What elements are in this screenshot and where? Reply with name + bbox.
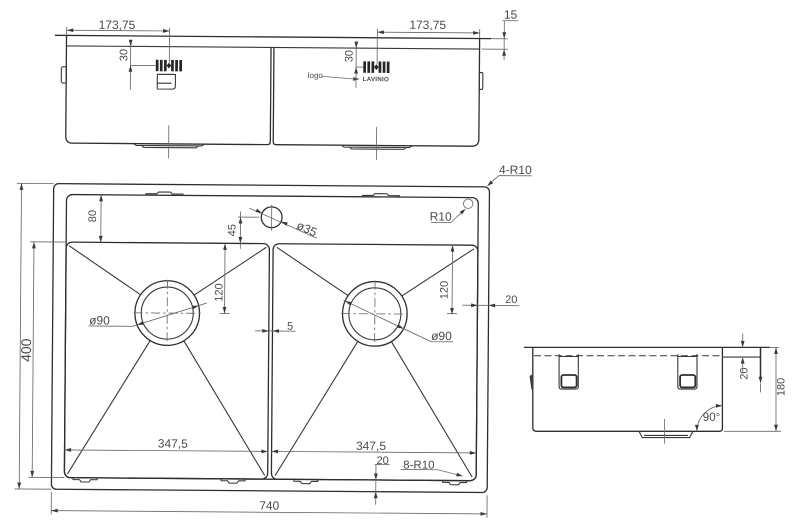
svg-text:4-R10: 4-R10 — [499, 163, 532, 177]
svg-text:ø35: ø35 — [294, 218, 319, 239]
svg-text:347,5: 347,5 — [356, 439, 386, 453]
svg-text:90°: 90° — [703, 412, 720, 424]
svg-text:30: 30 — [344, 50, 356, 62]
svg-text:173,75: 173,75 — [99, 18, 136, 32]
svg-text:ø90: ø90 — [89, 313, 110, 327]
svg-text:347,5: 347,5 — [158, 437, 188, 451]
svg-text:173,75: 173,75 — [409, 18, 446, 32]
svg-text:20: 20 — [376, 455, 388, 467]
svg-text:740: 740 — [259, 499, 279, 513]
svg-text:180: 180 — [776, 378, 788, 396]
svg-text:logo: logo — [308, 71, 324, 80]
svg-text:120: 120 — [213, 283, 225, 301]
svg-text:15: 15 — [504, 8, 518, 22]
svg-text:30: 30 — [118, 49, 130, 61]
svg-text:R10: R10 — [430, 209, 452, 223]
svg-text:400: 400 — [18, 338, 34, 362]
svg-text:ø90: ø90 — [431, 329, 452, 343]
svg-text:80: 80 — [87, 210, 99, 222]
svg-text:LAVINIO: LAVINIO — [363, 76, 390, 83]
svg-text:20: 20 — [738, 367, 750, 379]
svg-text:120: 120 — [439, 281, 451, 299]
svg-text:45: 45 — [227, 224, 239, 236]
svg-text:20: 20 — [505, 294, 517, 306]
